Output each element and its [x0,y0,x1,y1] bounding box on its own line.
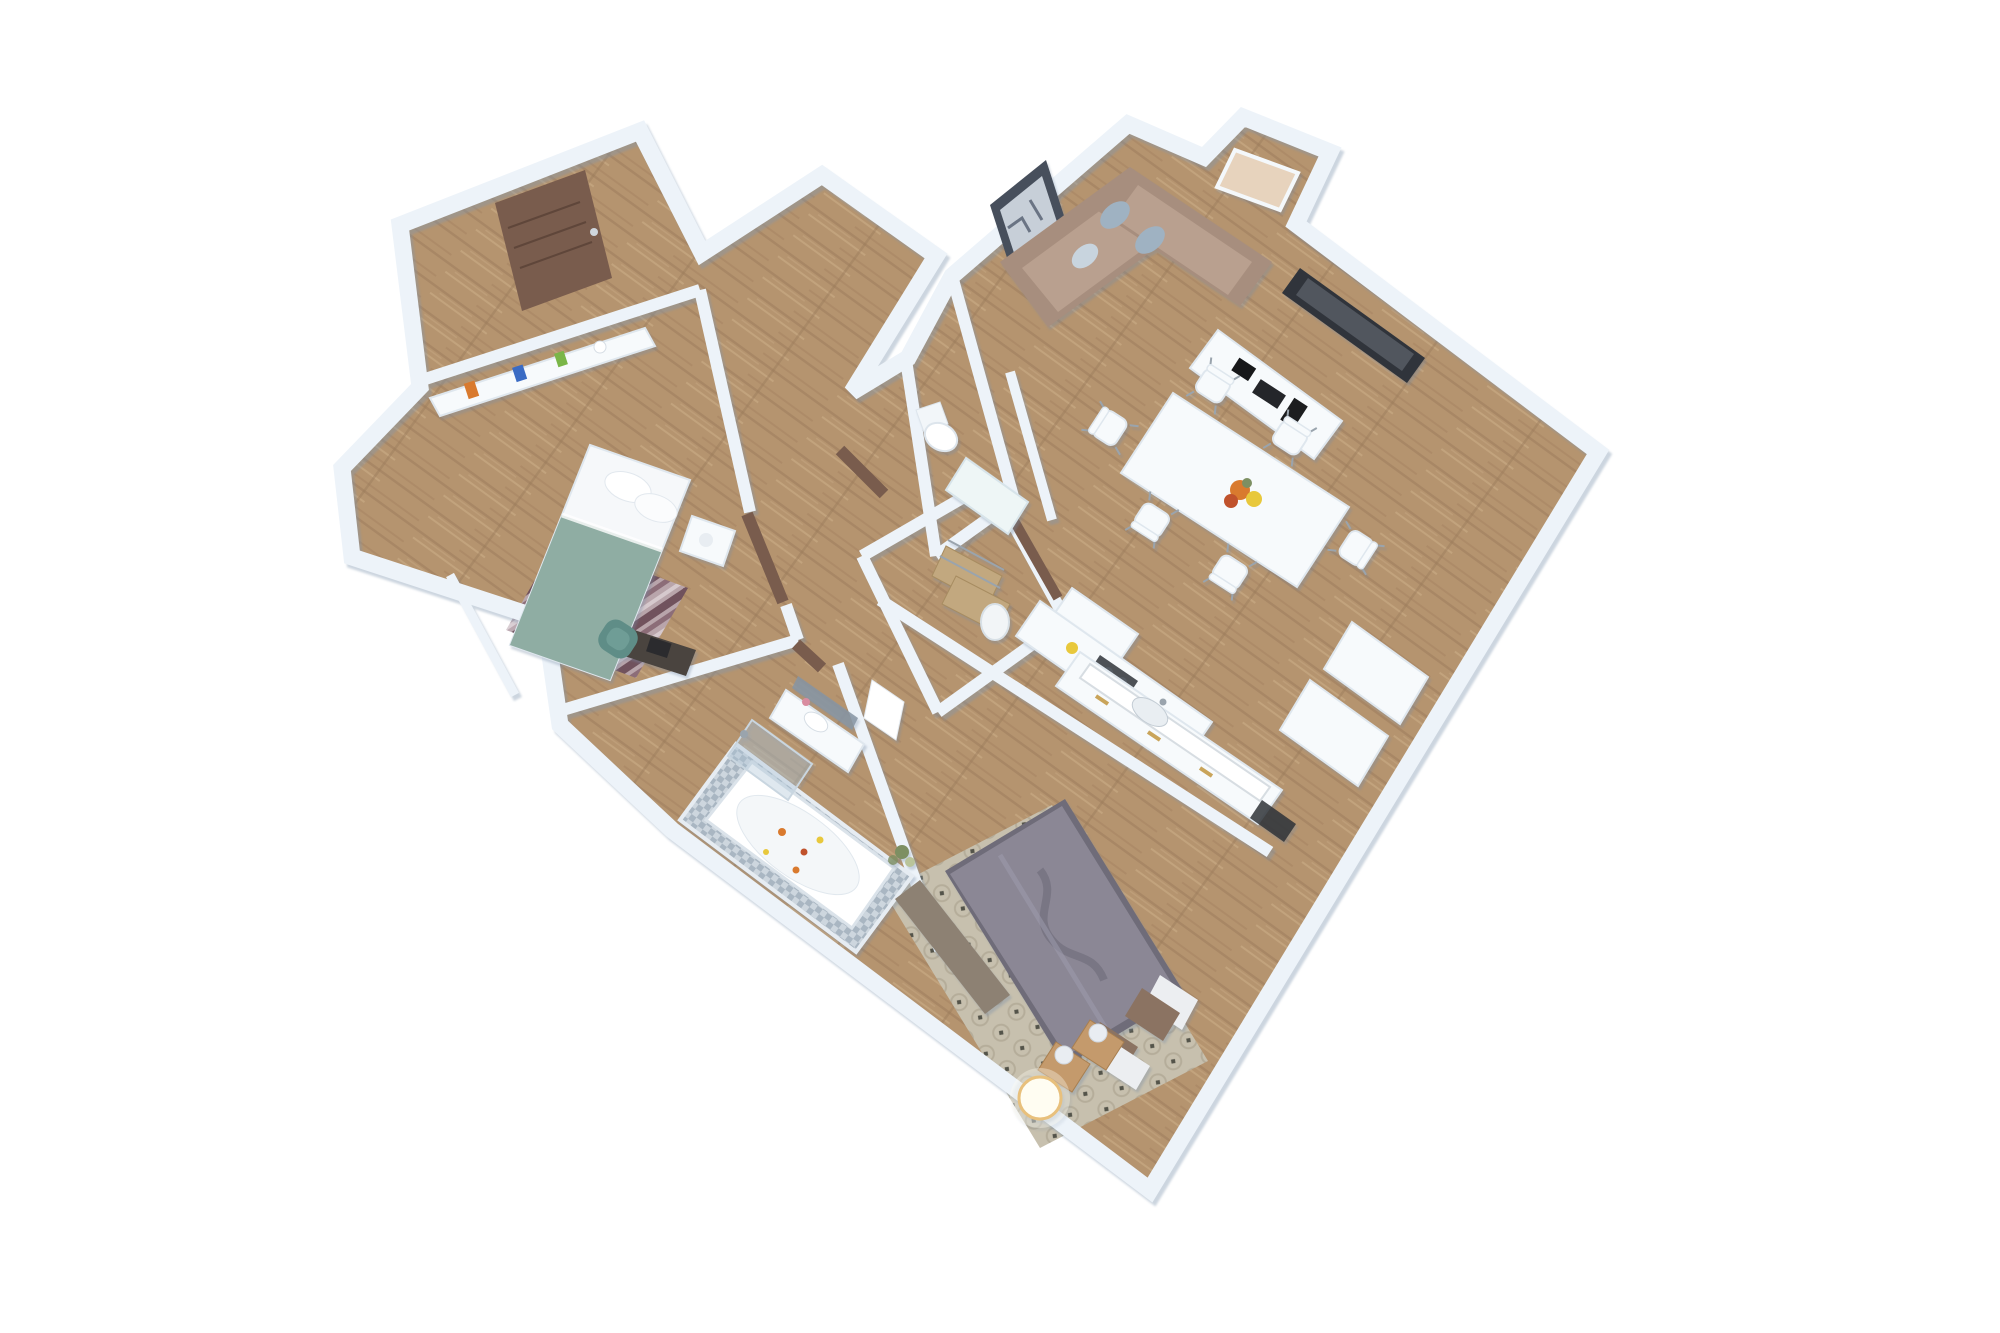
floor-plan-canvas [0,0,2000,1333]
vanity-flowers [802,698,810,706]
water-heater [981,604,1009,640]
sphere-lamp-2 [1089,1024,1107,1042]
floor-lamp-glowing [1019,1077,1061,1119]
front-door-handle [590,228,598,236]
sphere-lamp-1 [1055,1046,1073,1064]
kettle [1066,642,1078,654]
shelf-vase [594,341,606,353]
bed2-nightstand-lamp [699,533,713,547]
shower-head [740,730,748,738]
island-faucet [1160,699,1167,706]
